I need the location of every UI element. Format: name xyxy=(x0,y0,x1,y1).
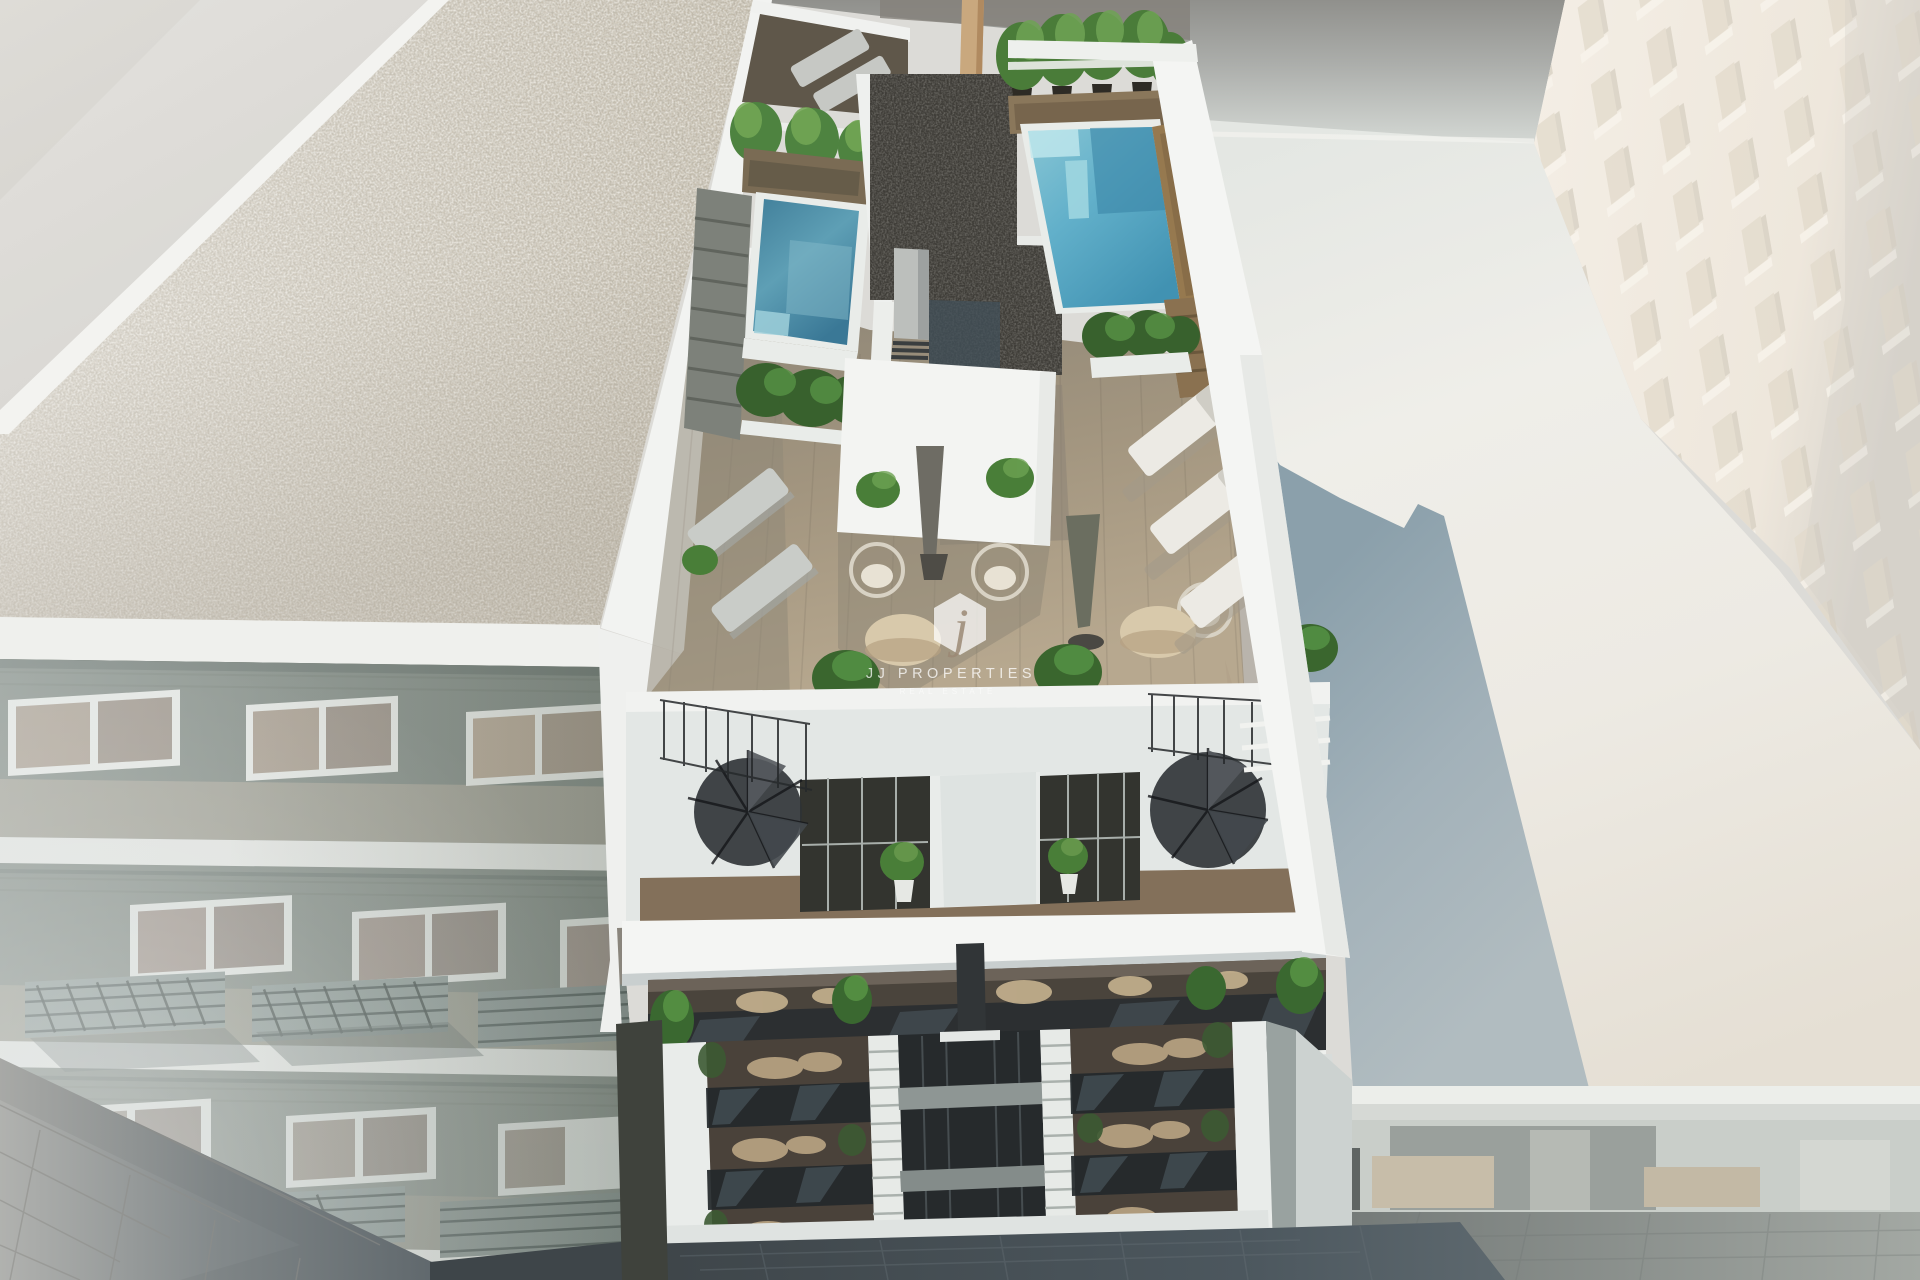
svg-text:JJ PROPERTIES: JJ PROPERTIES xyxy=(866,666,1036,682)
svg-text:REAL ESTATE: REAL ESTATE xyxy=(900,687,997,696)
